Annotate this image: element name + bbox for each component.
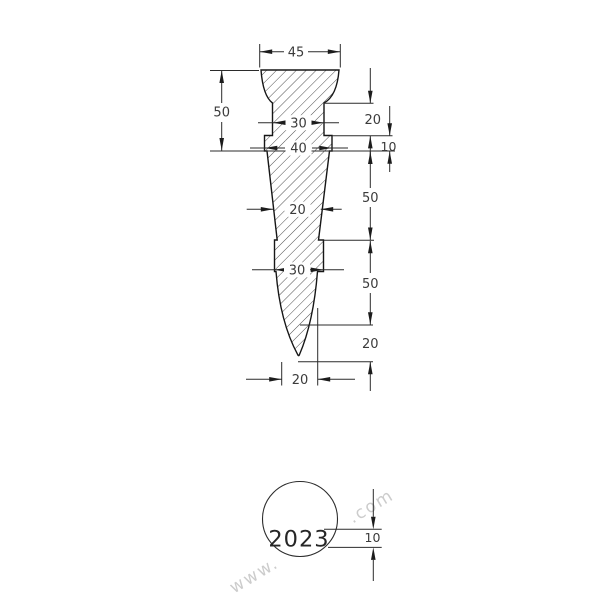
dim-top-width: 45 (288, 45, 305, 60)
arrow-down-icon (368, 228, 373, 241)
dim-tip-height: 20 (362, 337, 379, 352)
main-profile-view: 45 50 30 20 40 10 50 20 30 50 20 20 (210, 44, 396, 391)
watermark-suffix: .com (345, 485, 398, 528)
arrow-up-icon (368, 136, 373, 149)
detail-view: 2023 10 (263, 482, 382, 582)
arrow-right-icon (261, 207, 274, 212)
dim-collar1-width: 40 (290, 142, 307, 157)
dim-neck-height: 20 (365, 113, 382, 128)
dim-upper-height: 50 (213, 106, 230, 121)
dim-collar2-width: 30 (289, 264, 306, 279)
drawing-canvas: www. .com (0, 0, 600, 600)
arrow-right-icon (328, 49, 341, 54)
arrow-left-icon (260, 49, 273, 54)
arrow-down-icon (371, 517, 376, 530)
arrow-right-icon (269, 377, 282, 382)
dim-neck-width: 30 (290, 116, 307, 131)
arrow-down-icon (368, 312, 373, 325)
arrow-up-icon (368, 241, 373, 254)
arrow-up-icon (368, 362, 373, 375)
arrow-down-icon (387, 123, 392, 136)
watermark-prefix: www. (226, 553, 282, 598)
dim-cone-upper-height: 50 (362, 191, 379, 206)
year-label: 2023 (268, 527, 329, 553)
arrow-up-icon (371, 547, 376, 560)
dim-tip-width: 20 (292, 373, 309, 388)
arrow-left-icon (318, 377, 331, 382)
dim-cone-mid-width: 20 (289, 203, 306, 218)
dim-collar1-height: 10 (381, 139, 397, 154)
arrow-down-icon (368, 91, 373, 104)
arrow-up-icon (368, 152, 373, 165)
arrow-up-icon (219, 71, 224, 84)
drawing-sheet: www. .com (0, 0, 600, 600)
dim-cone-lower-height: 50 (362, 277, 379, 292)
arrow-down-icon (219, 138, 224, 151)
dim-text-height: 10 (365, 530, 381, 545)
